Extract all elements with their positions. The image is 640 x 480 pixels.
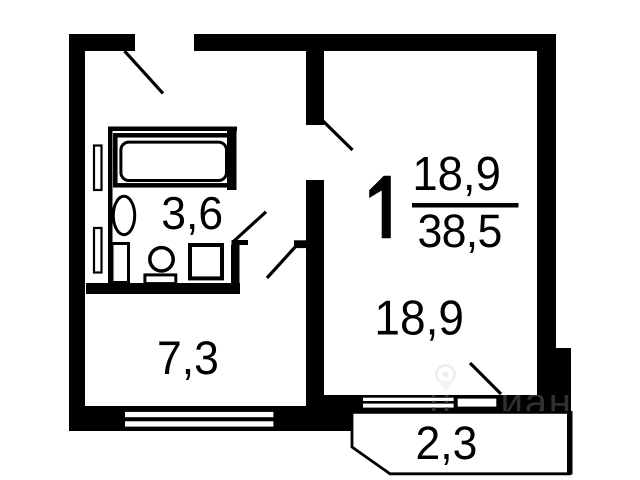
svg-text:18,9: 18,9 <box>412 147 501 201</box>
svg-text:2,3: 2,3 <box>415 418 477 470</box>
svg-text:18,9: 18,9 <box>374 290 464 345</box>
svg-text:7,3: 7,3 <box>157 333 219 385</box>
svg-text:38,5: 38,5 <box>418 206 502 257</box>
svg-text:3,6: 3,6 <box>161 188 223 239</box>
